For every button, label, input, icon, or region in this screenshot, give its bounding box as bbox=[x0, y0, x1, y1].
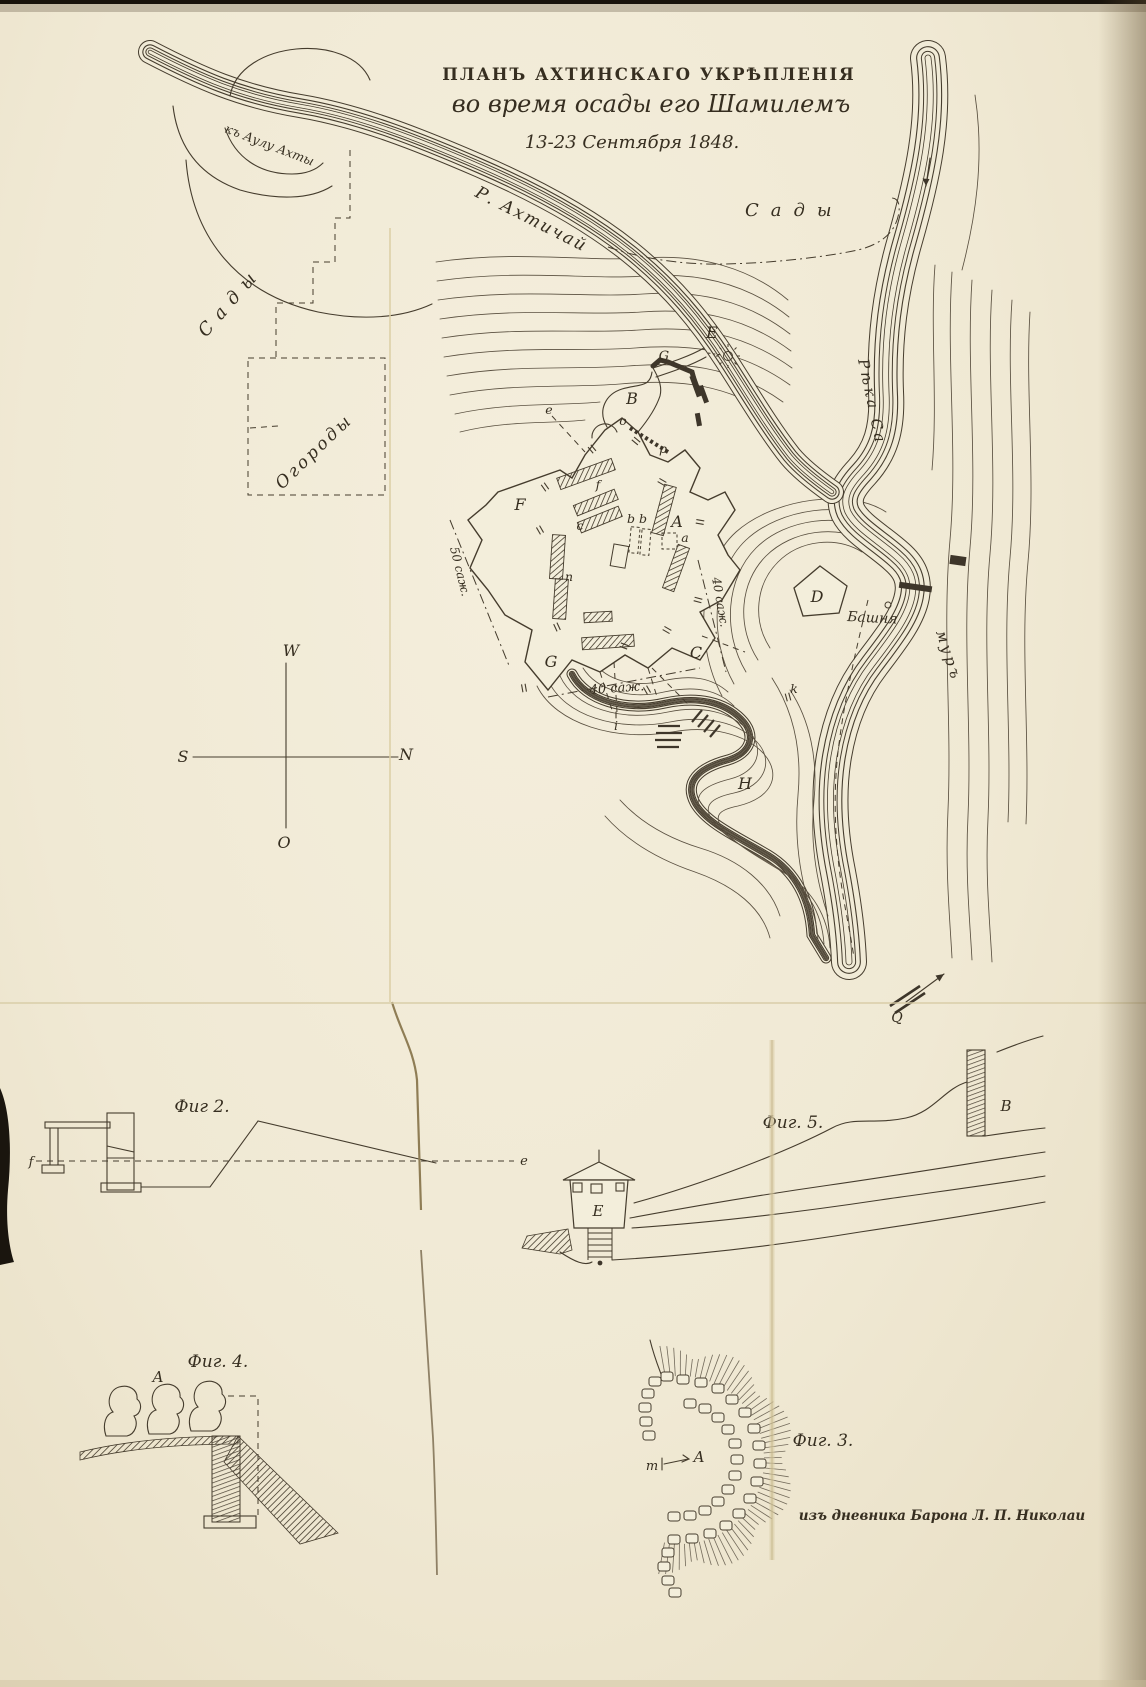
letter-a: a bbox=[681, 530, 688, 545]
figure-2: Фиг 2. f e bbox=[28, 1097, 529, 1192]
hillside-contours bbox=[436, 257, 792, 432]
fig4-letter-A: A bbox=[151, 1368, 164, 1386]
ravine-stream bbox=[572, 674, 826, 958]
label-vegetable-gardens: Огороды bbox=[272, 410, 357, 494]
label-road-to-aul: къ Аулу Ахты bbox=[223, 121, 316, 169]
label-50-sazhen: 50 саж. bbox=[447, 545, 473, 597]
fig4-label: Фиг. 4. bbox=[188, 1352, 249, 1372]
fig5-letter-B: B bbox=[999, 1097, 1011, 1115]
label-gardens-left: Сады bbox=[194, 262, 267, 341]
river-samur bbox=[831, 58, 931, 962]
east-bank-flow-lines bbox=[932, 95, 1031, 962]
attribution: изъ дневника Барона Л. П. Николаи bbox=[799, 1508, 1086, 1524]
label-samur-lower: муръ bbox=[932, 628, 965, 684]
figure-3: Фиг. 3. m A bbox=[639, 1340, 853, 1597]
siege-batteries bbox=[655, 710, 720, 747]
compass-east: O bbox=[277, 833, 290, 852]
fig3-letter-m: m bbox=[646, 1459, 658, 1474]
compass-north: N bbox=[398, 745, 414, 764]
compass-rose: W S N O bbox=[178, 641, 414, 852]
letter-Q: Q bbox=[891, 1010, 903, 1026]
title-line2: во время осады его Шамилемъ bbox=[452, 90, 850, 118]
star-fortress bbox=[468, 344, 740, 690]
letter-i: i bbox=[614, 718, 618, 733]
letter-A: A bbox=[669, 512, 683, 531]
compass-south: S bbox=[178, 747, 189, 766]
map-plan-svg: W S N O ПЛАНЪ АХТИНСКАГО УКРѢПЛЕНІЯ во в… bbox=[0, 0, 1146, 1687]
compass-west: W bbox=[283, 641, 301, 660]
label-gardens-right: Сады bbox=[745, 200, 844, 221]
label-40-sazhen-bottom: 40 саж. bbox=[588, 679, 645, 698]
letter-G-top: G bbox=[659, 349, 669, 364]
letter-B: B bbox=[625, 389, 638, 408]
letter-E: E bbox=[705, 323, 718, 342]
letter-bb: b b bbox=[627, 511, 647, 526]
fig2-letter-f: f bbox=[28, 1155, 36, 1170]
fig3-label: Фиг. 3. bbox=[793, 1431, 854, 1451]
river-engraving-line bbox=[572, 674, 826, 958]
label-tower: Башня bbox=[846, 609, 898, 628]
title-line3: 13-23 Сентября 1848. bbox=[525, 132, 740, 153]
figure-5: Фиг. 5. B E bbox=[522, 1036, 1045, 1265]
letter-D: D bbox=[810, 587, 824, 606]
fig2-letter-e: e bbox=[520, 1154, 528, 1169]
fig2-label: Фиг 2. bbox=[174, 1097, 229, 1117]
map-title: ПЛАНЪ АХТИНСКАГО УКРѢПЛЕНІЯ во время оса… bbox=[442, 65, 855, 153]
letter-n: n bbox=[565, 569, 573, 584]
title-line1: ПЛАНЪ АХТИНСКАГО УКРѢПЛЕНІЯ bbox=[442, 65, 855, 84]
letter-k: k bbox=[790, 681, 798, 696]
section-mark-q bbox=[890, 974, 944, 1013]
letter-c: c bbox=[576, 518, 583, 533]
fig5-letter-E: E bbox=[592, 1202, 604, 1220]
letter-e: e bbox=[545, 402, 552, 417]
scanned-map-page: W S N O ПЛАНЪ АХТИНСКАГО УКРѢПЛЕНІЯ во в… bbox=[0, 0, 1146, 1687]
letter-o: o bbox=[619, 413, 627, 428]
letter-p: p bbox=[659, 441, 667, 456]
letter-G: G bbox=[545, 652, 558, 671]
figure-4: Фиг. 4. A bbox=[80, 1352, 338, 1544]
letter-H: H bbox=[737, 774, 753, 793]
letter-F: F bbox=[513, 495, 526, 514]
letter-C: C bbox=[690, 643, 702, 662]
fig3-letter-A: A bbox=[692, 1448, 705, 1466]
